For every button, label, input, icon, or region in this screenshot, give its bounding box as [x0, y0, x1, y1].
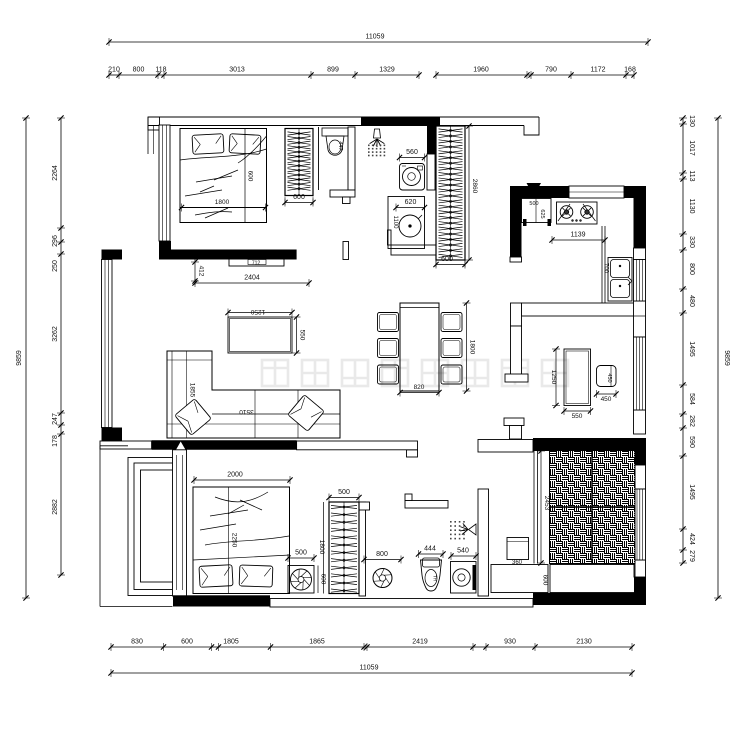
svg-text:1329: 1329	[379, 67, 395, 74]
svg-text:600: 600	[181, 639, 193, 646]
svg-text:1495: 1495	[688, 341, 695, 357]
svg-text:1139: 1139	[570, 232, 585, 239]
svg-text:930: 930	[504, 639, 516, 646]
svg-text:412: 412	[198, 266, 205, 277]
svg-text:118: 118	[155, 67, 166, 74]
svg-text:282: 282	[688, 415, 695, 427]
svg-text:2000: 2000	[227, 472, 243, 479]
svg-text:625: 625	[539, 209, 545, 218]
svg-text:9859: 9859	[16, 350, 23, 366]
svg-text:540: 540	[457, 548, 469, 555]
svg-text:1130: 1130	[688, 198, 695, 213]
svg-text:11059: 11059	[360, 665, 379, 672]
svg-text:1855: 1855	[189, 383, 196, 398]
svg-text:424: 424	[688, 533, 695, 545]
svg-text:296: 296	[52, 235, 59, 247]
svg-text:1800: 1800	[318, 540, 325, 555]
svg-text:3013: 3013	[229, 67, 245, 74]
svg-text:600: 600	[441, 256, 453, 263]
svg-text:600: 600	[320, 574, 327, 585]
svg-text:1800: 1800	[215, 199, 230, 206]
svg-text:700: 700	[603, 263, 609, 274]
svg-text:800: 800	[688, 263, 695, 275]
svg-text:TH: TH	[433, 575, 438, 581]
svg-text:1100: 1100	[392, 216, 398, 230]
svg-text:820: 820	[414, 384, 425, 391]
svg-text:590: 590	[688, 436, 695, 448]
svg-text:800: 800	[376, 551, 388, 558]
svg-text:550: 550	[572, 413, 583, 420]
svg-text:480: 480	[688, 295, 695, 307]
svg-text:1250: 1250	[250, 308, 265, 315]
svg-text:250: 250	[52, 260, 59, 272]
svg-text:899: 899	[327, 67, 339, 74]
svg-text:2264: 2264	[52, 165, 59, 181]
svg-text:1800: 1800	[469, 340, 476, 355]
svg-text:560: 560	[406, 149, 418, 156]
svg-text:168: 168	[624, 67, 636, 74]
svg-text:1960: 1960	[473, 67, 489, 74]
svg-text:584: 584	[688, 393, 695, 405]
svg-text:450: 450	[606, 373, 612, 382]
svg-text:500: 500	[338, 489, 350, 496]
svg-text:830: 830	[131, 639, 143, 646]
svg-text:1250: 1250	[550, 370, 557, 385]
svg-text:113: 113	[688, 170, 695, 181]
svg-text:3510: 3510	[239, 408, 254, 415]
svg-text:500: 500	[295, 550, 307, 557]
svg-text:550: 550	[299, 330, 306, 341]
svg-text:2882: 2882	[52, 499, 59, 515]
svg-text:1805: 1805	[223, 639, 239, 646]
svg-text:600: 600	[542, 575, 549, 586]
svg-text:1865: 1865	[309, 639, 325, 646]
svg-text:9859: 9859	[723, 350, 730, 366]
svg-text:2130: 2130	[576, 639, 592, 646]
svg-text:444: 444	[424, 546, 436, 553]
svg-text:1172: 1172	[590, 67, 605, 74]
svg-text:500: 500	[529, 201, 538, 207]
svg-text:2419: 2419	[412, 639, 428, 646]
svg-text:790: 790	[545, 67, 557, 74]
svg-text:712: 712	[252, 261, 261, 267]
svg-text:620: 620	[405, 199, 417, 206]
svg-text:279: 279	[688, 550, 695, 562]
svg-text:11059: 11059	[366, 34, 385, 41]
svg-text:2250: 2250	[231, 533, 238, 548]
svg-text:3262: 3262	[52, 326, 59, 342]
svg-text:600: 600	[293, 194, 305, 201]
svg-text:360: 360	[512, 560, 523, 566]
svg-text:178: 178	[52, 435, 59, 447]
svg-text:210: 210	[108, 67, 120, 74]
svg-text:447: 447	[337, 141, 343, 150]
svg-text:800: 800	[133, 67, 145, 74]
svg-text:1017: 1017	[688, 140, 695, 156]
svg-text:130: 130	[688, 115, 695, 127]
svg-text:1495: 1495	[688, 484, 695, 500]
svg-text:2860: 2860	[471, 179, 478, 194]
svg-text:450: 450	[601, 396, 612, 403]
svg-text:2453: 2453	[543, 496, 550, 511]
svg-text:2404: 2404	[244, 275, 260, 282]
svg-text:330: 330	[688, 236, 695, 248]
svg-text:247: 247	[52, 413, 59, 425]
svg-text:600: 600	[247, 171, 254, 182]
